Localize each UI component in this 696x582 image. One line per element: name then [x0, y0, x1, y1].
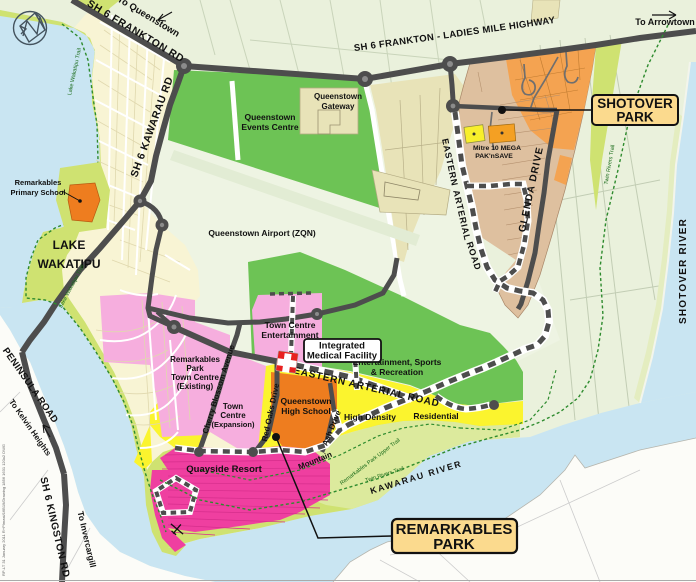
svg-text:Town Centre: Town Centre	[265, 320, 316, 330]
svg-text:Centre: Centre	[220, 411, 246, 420]
svg-text:Mitre 10 MEGA: Mitre 10 MEGA	[473, 145, 521, 152]
svg-text:Queenstown: Queenstown	[244, 112, 295, 122]
svg-text:Queenstown: Queenstown	[314, 92, 362, 101]
svg-text:Quayside Resort: Quayside Resort	[186, 464, 262, 475]
svg-text:Town: Town	[223, 402, 243, 411]
svg-text:Queenstown Airport (ZQN): Queenstown Airport (ZQN)	[208, 228, 316, 238]
svg-text:PARK: PARK	[616, 110, 654, 125]
svg-text:To Arrowtown: To Arrowtown	[635, 17, 695, 27]
svg-text:LAKE: LAKE	[53, 238, 86, 252]
svg-text:Medical Facility: Medical Facility	[307, 351, 378, 362]
svg-text:High School: High School	[281, 406, 331, 416]
svg-text:PARK: PARK	[433, 536, 475, 553]
svg-text:Queenstown: Queenstown	[280, 396, 331, 406]
svg-text:Gateway: Gateway	[322, 102, 355, 111]
svg-text:High Density: High Density	[344, 412, 396, 422]
svg-text:SHOTOVER RIVER: SHOTOVER RIVER	[678, 218, 689, 324]
svg-text:Remarkables: Remarkables	[15, 178, 62, 187]
svg-text:Town Centre: Town Centre	[171, 373, 219, 382]
svg-text:Events Centre: Events Centre	[241, 122, 298, 132]
svg-text:Park: Park	[186, 364, 204, 373]
svg-text:RP-LT 31 January 2011 R+P/m: RP-LT 31 January 2011 R+P/mast/16B19/Dra…	[1, 444, 6, 576]
svg-text:(Expansion): (Expansion)	[212, 420, 255, 429]
svg-text:WAKATIPU: WAKATIPU	[37, 257, 100, 271]
svg-text:& Recreation: & Recreation	[371, 367, 423, 377]
svg-text:Primary School: Primary School	[10, 188, 65, 197]
svg-text:Remarkables: Remarkables	[170, 355, 220, 364]
svg-text:PAK'nSAVE: PAK'nSAVE	[475, 153, 513, 160]
svg-text:(Existing): (Existing)	[177, 382, 214, 391]
svg-text:Residential: Residential	[413, 411, 458, 421]
